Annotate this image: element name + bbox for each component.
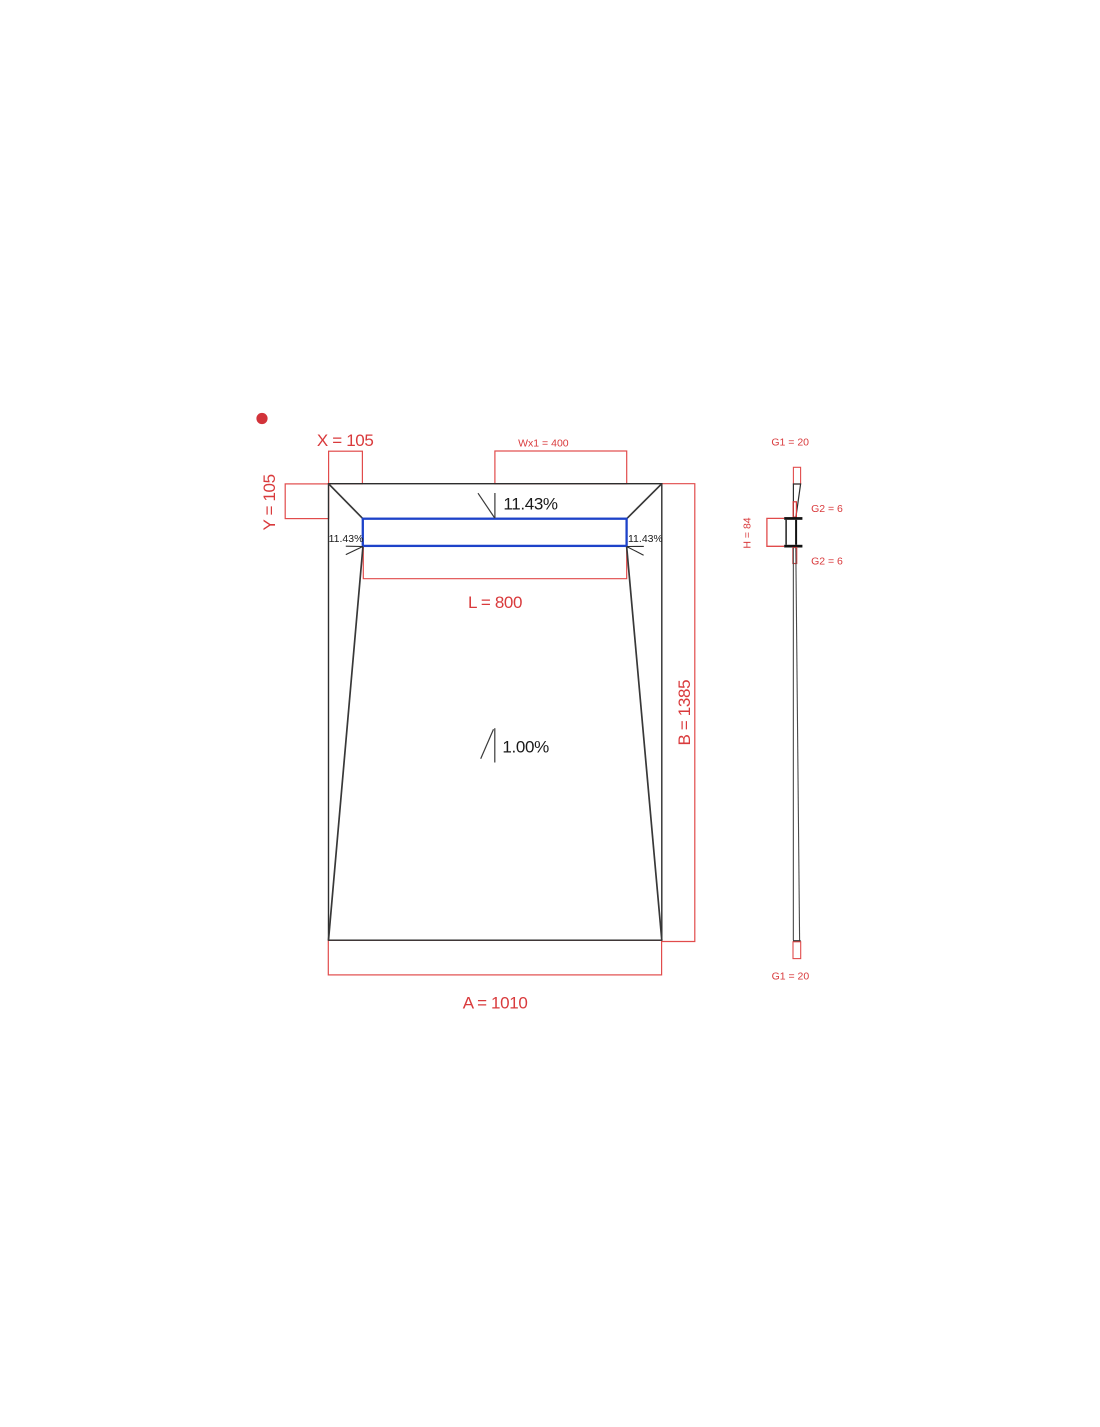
svg-text:H = 84: H = 84 (741, 517, 753, 548)
svg-text:A = 1010: A = 1010 (463, 994, 528, 1013)
svg-text:G2 = 6: G2 = 6 (811, 555, 843, 567)
svg-text:G1 = 20: G1 = 20 (771, 436, 809, 448)
svg-text:11.43%: 11.43% (503, 495, 558, 514)
svg-text:11.43%: 11.43% (628, 533, 663, 545)
svg-text:L = 800: L = 800 (468, 593, 522, 612)
svg-text:G1 = 20: G1 = 20 (772, 971, 810, 983)
svg-text:11.43%: 11.43% (329, 533, 364, 545)
svg-text:B = 1385: B = 1385 (675, 680, 694, 746)
svg-text:X = 105: X = 105 (317, 431, 374, 450)
svg-text:1.00%: 1.00% (502, 738, 549, 757)
svg-text:G2 = 6: G2 = 6 (811, 503, 843, 515)
svg-text:Y = 105: Y = 105 (260, 474, 279, 530)
svg-text:Wx1 = 400: Wx1 = 400 (518, 437, 569, 449)
